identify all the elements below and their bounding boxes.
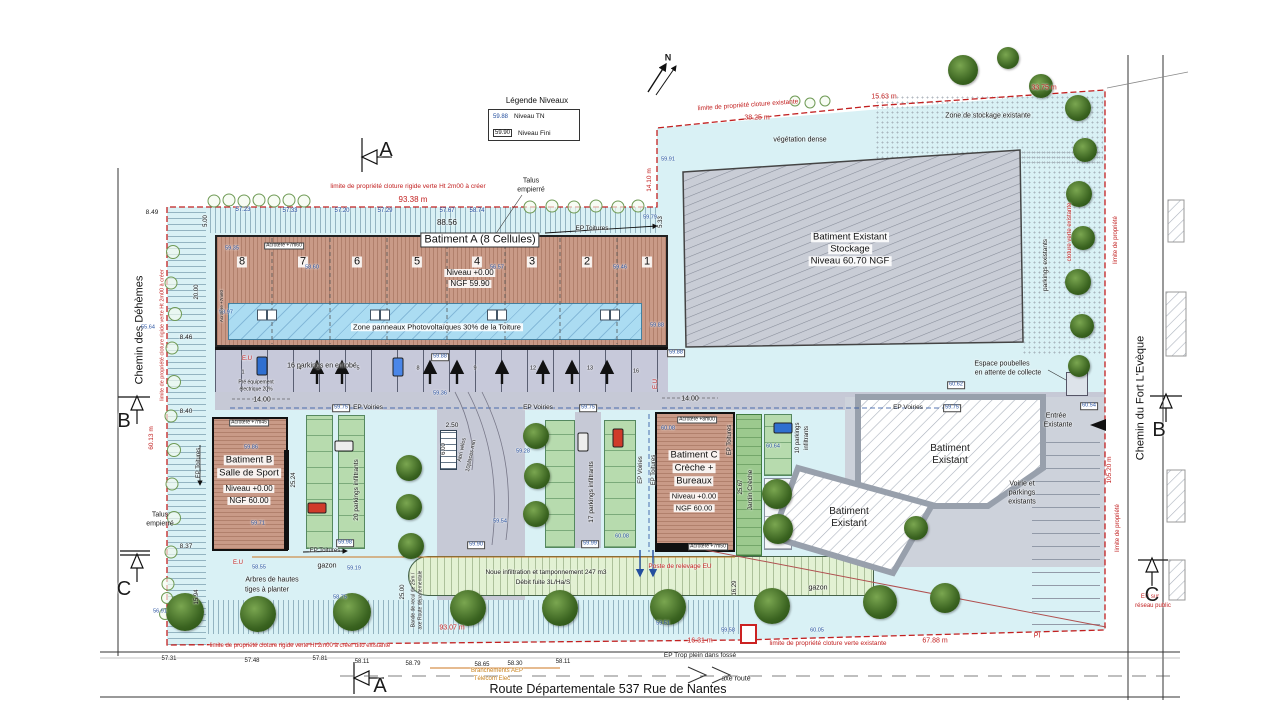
batiment-b-title-2: Salle de Sport bbox=[217, 468, 281, 478]
annotation-label: EU sur bbox=[1141, 594, 1159, 600]
annotation-label: 58.30 bbox=[507, 661, 522, 667]
cell-number: 5 bbox=[412, 257, 422, 268]
batiment-a-ngf: NGF 59.90 bbox=[448, 280, 491, 288]
shrub-icon bbox=[283, 194, 296, 207]
cell-number: 4 bbox=[472, 257, 482, 268]
annotation-label: empierré bbox=[517, 187, 545, 194]
annotation-label: Branchements AEP bbox=[471, 668, 523, 674]
rooflight-icon bbox=[600, 310, 620, 321]
rooflight-icon bbox=[370, 310, 390, 321]
annotation-label: 58.79 bbox=[405, 661, 420, 667]
annotation-label: 67.88 m bbox=[922, 638, 947, 645]
stalls-10 bbox=[764, 414, 792, 476]
batiment-b-edge bbox=[284, 450, 289, 550]
annotation-label: PI bbox=[1034, 633, 1041, 640]
batiment-a-title: Batiment A (8 Cellules) bbox=[420, 233, 539, 248]
shrub-icon bbox=[790, 96, 801, 107]
north-arrow-icon bbox=[648, 64, 676, 95]
talus-left-hatch bbox=[168, 210, 206, 645]
annotation-label: 60.13 m bbox=[149, 426, 156, 450]
batiment-c-ngf: NGF 60.00 bbox=[674, 504, 715, 512]
annotation-label: limite de propriété cloture rigide verte… bbox=[160, 269, 166, 400]
tree-icon bbox=[948, 55, 978, 85]
shrub-icon bbox=[208, 195, 221, 208]
annotation-label: limite de propriété bbox=[1113, 216, 1119, 264]
batiment-c-title-3: Bureaux bbox=[674, 476, 713, 486]
annotation-label: Talus bbox=[523, 178, 539, 185]
cell-number: 2 bbox=[582, 257, 592, 268]
stalls-white bbox=[764, 478, 792, 550]
shrub-icon bbox=[238, 195, 251, 208]
batiment-b-level: Niveau +0.00 bbox=[223, 485, 274, 493]
annotation-label: limite de propriété cloture rigide verte… bbox=[330, 184, 485, 191]
site-plan: Légende Niveaux 59.88Niveau TN 59.90Nive… bbox=[0, 0, 1280, 720]
batiment-a-level: Niveau +0.00 bbox=[444, 269, 495, 277]
road-label-right: Chemin du Fort L'Evèque bbox=[1136, 336, 1147, 460]
annotation-label: B bbox=[1152, 420, 1165, 440]
annotation-label: limite de propriété cloture verte exista… bbox=[769, 641, 886, 648]
legend-tn-label: Niveau TN bbox=[514, 113, 545, 120]
pi-marker bbox=[740, 624, 757, 644]
annotation-label: A bbox=[379, 140, 392, 160]
annotation-label: B bbox=[117, 411, 130, 431]
annotation-label: 105.20 m bbox=[1107, 456, 1114, 483]
stalls-20-col2 bbox=[338, 415, 365, 549]
shrub-icon bbox=[223, 194, 236, 207]
annotation-label: 93.38 m bbox=[399, 196, 428, 204]
hedge-bottom-hatch bbox=[208, 600, 740, 634]
existing-stalls-right bbox=[1032, 430, 1100, 625]
legend-tn-value: 59.88 bbox=[493, 114, 508, 120]
rooflight-icon bbox=[257, 310, 277, 321]
storage-title-1: Batiment Existant bbox=[811, 232, 889, 242]
annotation-label: réseau public bbox=[1135, 603, 1171, 609]
annotation-label: 8.49 bbox=[146, 210, 159, 217]
espace-poubelles-box bbox=[1066, 372, 1088, 396]
rooflight-icon bbox=[487, 310, 507, 321]
batiment-b-title-1: Batiment B bbox=[224, 455, 274, 465]
legend-title: Légende Niveaux bbox=[506, 97, 568, 105]
batiment-c-title-2: Crèche + bbox=[673, 463, 716, 473]
jardin-creche-strip bbox=[736, 414, 762, 556]
legend-box: 59.88Niveau TN 59.90Niveau Fini bbox=[488, 109, 580, 141]
batiment-c-edge bbox=[657, 543, 712, 550]
annotation-label: 14.10 m bbox=[647, 168, 654, 192]
talus-top-hatch bbox=[210, 207, 660, 233]
annotation-label: Talus bbox=[152, 512, 168, 519]
road-label-bottom: Route Départementale 537 Rue de Nantes bbox=[490, 683, 727, 696]
annotation-label: C bbox=[1145, 585, 1159, 605]
batiment-c-level: Niveau +0.00 bbox=[670, 492, 718, 500]
batiment-c-title-1: Batiment C bbox=[669, 450, 720, 460]
stalls-17-col1 bbox=[545, 420, 575, 548]
annotation-label: N bbox=[665, 54, 672, 63]
annotation-label: EP Trop plein dans fossé bbox=[664, 653, 736, 660]
parking-row-16 bbox=[215, 347, 668, 392]
shrub-icon bbox=[253, 194, 266, 207]
existing-parking-texture bbox=[1022, 150, 1102, 355]
stalls-17-col2 bbox=[604, 420, 636, 548]
batiment-b-ngf: NGF 60.00 bbox=[227, 497, 270, 505]
annotation-label: limite de propriété bbox=[1115, 504, 1121, 552]
annotation-label: 57.81 bbox=[312, 656, 327, 662]
annotation-label: C bbox=[117, 579, 131, 599]
legend-fini-value: 59.90 bbox=[493, 129, 512, 137]
storage-level: Niveau 60.70 NGF bbox=[809, 256, 892, 266]
annotation-label: limite de propriété cloture existante bbox=[697, 99, 798, 113]
cell-number: 7 bbox=[298, 257, 308, 268]
shrub-icon bbox=[268, 195, 281, 208]
shrub-icon bbox=[298, 195, 311, 208]
axe-route-chevrons bbox=[688, 667, 730, 683]
drive-aisle-stalls bbox=[575, 412, 601, 548]
pv-zone-label: Zone panneaux Photovoltaïques 30% de la … bbox=[351, 323, 523, 331]
cell-number: 3 bbox=[527, 257, 537, 268]
stalls-20-col1 bbox=[306, 415, 333, 549]
annotation-label: 58.11 bbox=[556, 659, 571, 665]
storage-title-2: Stockage bbox=[828, 244, 872, 254]
annotation-label: 58.65 bbox=[474, 662, 489, 668]
road-label-left: Chemin des Déhèmes bbox=[135, 276, 146, 385]
shrub-icon bbox=[820, 96, 831, 107]
annotation-label: 56.91 bbox=[153, 609, 167, 615]
annotation-label: A bbox=[373, 676, 386, 696]
tree-icon bbox=[997, 47, 1019, 69]
annotation-label: 57.48 bbox=[244, 658, 259, 664]
annotation-label: 58.11 bbox=[355, 659, 370, 665]
legend-fini-label: Niveau Fini bbox=[518, 130, 551, 137]
annotation-label: 33.75 m bbox=[1031, 85, 1056, 92]
cell-number: 8 bbox=[237, 257, 247, 268]
cell-number: 6 bbox=[352, 257, 362, 268]
abri-velos bbox=[440, 430, 457, 470]
shrub-icon bbox=[805, 98, 816, 109]
annotation-label: 57.31 bbox=[161, 656, 176, 662]
noue-infiltration bbox=[408, 556, 874, 596]
cell-number: 1 bbox=[642, 257, 652, 268]
